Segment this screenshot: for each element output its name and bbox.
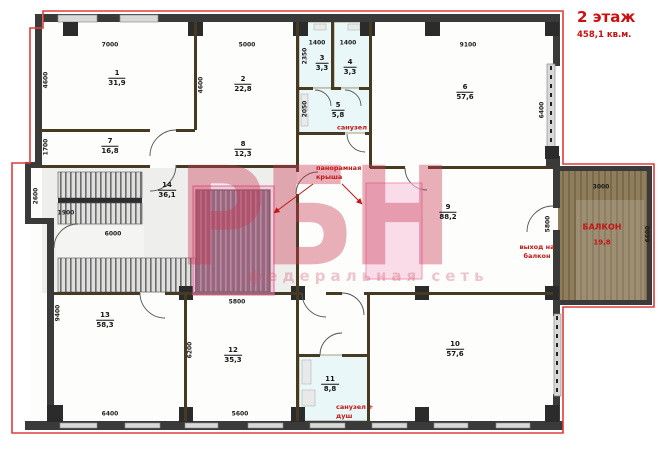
- bathroom-shower-note: санузел + душ: [336, 403, 374, 421]
- room-number: 8: [234, 140, 251, 150]
- balcony-exit-line2: балкон: [519, 252, 554, 261]
- dim-niche-left: 2600: [33, 188, 40, 205]
- room-number: 10: [446, 340, 464, 350]
- dim-niche-bottom: 1900: [58, 210, 75, 217]
- dim-room5-side: 2050: [302, 101, 309, 118]
- room-area: 58,3: [96, 321, 114, 330]
- bathroom-shower-line2: душ: [336, 412, 374, 421]
- room-13-label: 1358,3: [96, 311, 114, 330]
- room-1-label: 131,9: [108, 69, 125, 88]
- room-11-label: 118,8: [321, 375, 339, 394]
- room-number: 1: [108, 69, 125, 79]
- bathroom-shower-line1: санузел +: [336, 403, 374, 412]
- room-area: 16,8: [101, 147, 118, 156]
- room-6-label: 657,6: [456, 83, 473, 102]
- dim-room3-top: 1400: [309, 40, 326, 47]
- room-number: 14: [158, 181, 176, 191]
- dim-room1-left: 4600: [43, 72, 50, 89]
- balcony-name: БАЛКОН: [583, 223, 622, 234]
- balcony-exit-line1: выход на: [519, 243, 554, 252]
- dim-room12-left: 6200: [187, 342, 194, 359]
- dim-room9-right: 5800: [545, 216, 552, 233]
- floorplan-page: РБН федеральная сеть 131,9 222,8 33,3 43…: [0, 0, 658, 465]
- dim-room3-side: 2350: [302, 48, 309, 65]
- dim-room12-bottom: 5600: [232, 411, 249, 418]
- room-area: 88,2: [439, 213, 456, 222]
- panoramic-roof-note: панорамная крыша: [316, 164, 361, 182]
- room-number: 9: [439, 203, 456, 213]
- room-area: 3,3: [316, 64, 329, 73]
- room-9-label: 988,2: [439, 203, 456, 222]
- dim-room13-left: 9400: [55, 305, 62, 322]
- room-number: 7: [101, 137, 118, 147]
- dim-room7-left: 1700: [43, 139, 50, 156]
- balcony-area: 19,8: [593, 238, 610, 247]
- dim-room2-left: 4600: [198, 77, 205, 94]
- room-12-label: 1235,3: [224, 346, 242, 365]
- room-area: 22,8: [234, 85, 251, 94]
- room-number: 11: [321, 375, 339, 385]
- room-10-label: 1057,6: [446, 340, 464, 359]
- room-number: 4: [344, 58, 357, 68]
- watermark-subtitle: федеральная сеть: [247, 267, 488, 285]
- bathroom-note: санузел: [337, 124, 367, 133]
- room-3-label: 33,3: [316, 54, 329, 73]
- room-area: 3,3: [344, 68, 357, 77]
- panoramic-roof-line1: панорамная: [316, 164, 361, 173]
- room-number: 2: [234, 75, 251, 85]
- room-4-label: 43,3: [344, 58, 357, 77]
- room-area: 5,8: [332, 111, 345, 120]
- dim-room4-top: 1400: [340, 40, 357, 47]
- dim-stairs-bottom: 6000: [105, 231, 122, 238]
- room-number: 3: [316, 54, 329, 64]
- dim-room1-top: 7000: [102, 42, 119, 49]
- dim-room6-right: 6400: [539, 102, 546, 119]
- room-area: 57,6: [456, 93, 473, 102]
- dim-balcony-top: 3000: [593, 184, 610, 191]
- room-area: 12,3: [234, 150, 251, 159]
- balcony-exit-note: выход на балкон: [519, 243, 554, 261]
- room-number: 6: [456, 83, 473, 93]
- room-number: 5: [332, 101, 345, 111]
- dim-room6-top: 9100: [460, 42, 477, 49]
- room-14-label: 1436,1: [158, 181, 176, 200]
- room-5-label: 55,8: [332, 101, 345, 120]
- room-number: 12: [224, 346, 242, 356]
- title-block: 2 этаж 458,1 кв.м.: [577, 8, 635, 40]
- room-number: 13: [96, 311, 114, 321]
- room-7-label: 716,8: [101, 137, 118, 156]
- room-8-label: 812,3: [234, 140, 251, 159]
- dim-balcony-right: 6600: [645, 226, 652, 243]
- panoramic-roof-line2: крыша: [316, 173, 361, 182]
- room-2-label: 222,8: [234, 75, 251, 94]
- room-area: 8,8: [321, 385, 339, 394]
- total-area: 458,1 кв.м.: [577, 30, 635, 40]
- dim-room12-top: 5800: [229, 299, 246, 306]
- room-area: 57,6: [446, 350, 464, 359]
- dim-room13-bottom: 6400: [102, 411, 119, 418]
- dim-room2-top: 5000: [239, 42, 256, 49]
- room-area: 31,9: [108, 79, 125, 88]
- floor-title: 2 этаж: [577, 8, 635, 26]
- room-area: 36,1: [158, 191, 176, 200]
- room-area: 35,3: [224, 356, 242, 365]
